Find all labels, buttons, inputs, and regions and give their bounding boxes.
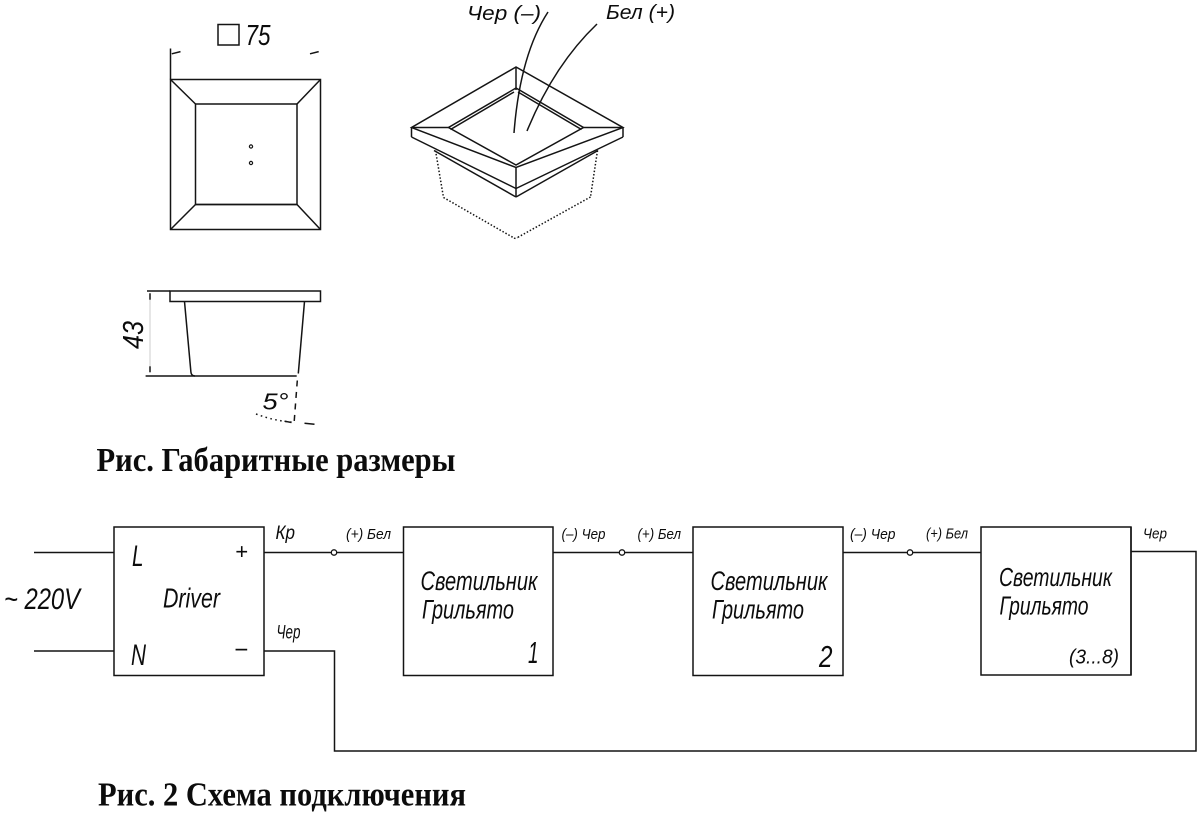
svg-text:Светильник: Светильник: [711, 566, 829, 596]
svg-text:(–) Чер: (–) Чер: [850, 527, 896, 543]
svg-text:(+) Бел: (+) Бел: [638, 527, 682, 543]
svg-text:1: 1: [528, 635, 539, 670]
svg-text:75: 75: [246, 20, 271, 52]
svg-text:Грильято: Грильято: [422, 595, 514, 625]
svg-text:Чер: Чер: [1143, 527, 1167, 543]
svg-text:Бел (+): Бел (+): [606, 1, 675, 24]
svg-text:Светильник: Светильник: [999, 562, 1113, 592]
svg-text:(+) Бел: (+) Бел: [926, 527, 968, 543]
svg-text:Рис. Габаритные размеры: Рис. Габаритные размеры: [97, 442, 456, 479]
svg-text:−: −: [234, 637, 248, 664]
svg-text:Рис. 2 Схема подключения: Рис. 2 Схема подключения: [98, 777, 466, 814]
svg-text:Светильник: Светильник: [421, 566, 539, 596]
svg-text:43: 43: [118, 321, 150, 349]
svg-text:2: 2: [818, 639, 832, 674]
svg-text:L: L: [132, 540, 144, 573]
svg-text:(3...8): (3...8): [1069, 647, 1119, 669]
svg-text:Чер (–): Чер (–): [467, 2, 541, 25]
svg-text:Грильято: Грильято: [1000, 591, 1089, 621]
svg-text:~ 220V: ~ 220V: [4, 583, 82, 616]
svg-text:Кр: Кр: [276, 523, 296, 544]
svg-text:(–) Чер: (–) Чер: [562, 527, 606, 543]
svg-text:N: N: [131, 639, 146, 672]
svg-text:Driver: Driver: [163, 583, 221, 614]
svg-text:Грильято: Грильято: [712, 595, 804, 625]
svg-text:(+) Бел: (+) Бел: [346, 527, 391, 543]
svg-text:Чер: Чер: [277, 623, 301, 644]
svg-text:+: +: [235, 539, 248, 564]
svg-text:5°: 5°: [263, 389, 289, 415]
